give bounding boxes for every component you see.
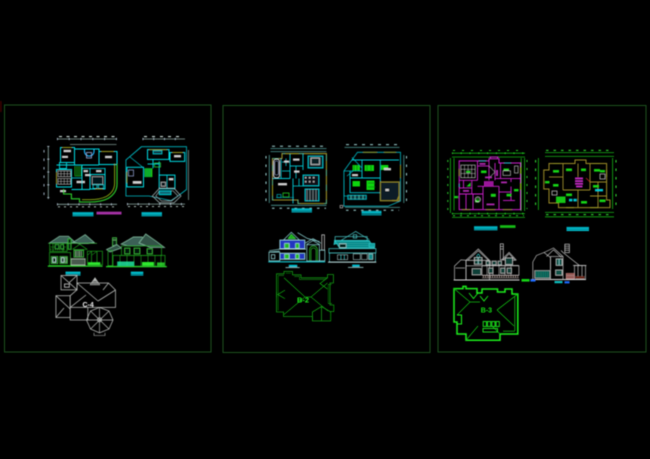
svg-text:B-2: B-2 <box>297 295 309 304</box>
svg-text:B-3: B-3 <box>481 307 492 314</box>
svg-text:C-4: C-4 <box>83 302 94 309</box>
